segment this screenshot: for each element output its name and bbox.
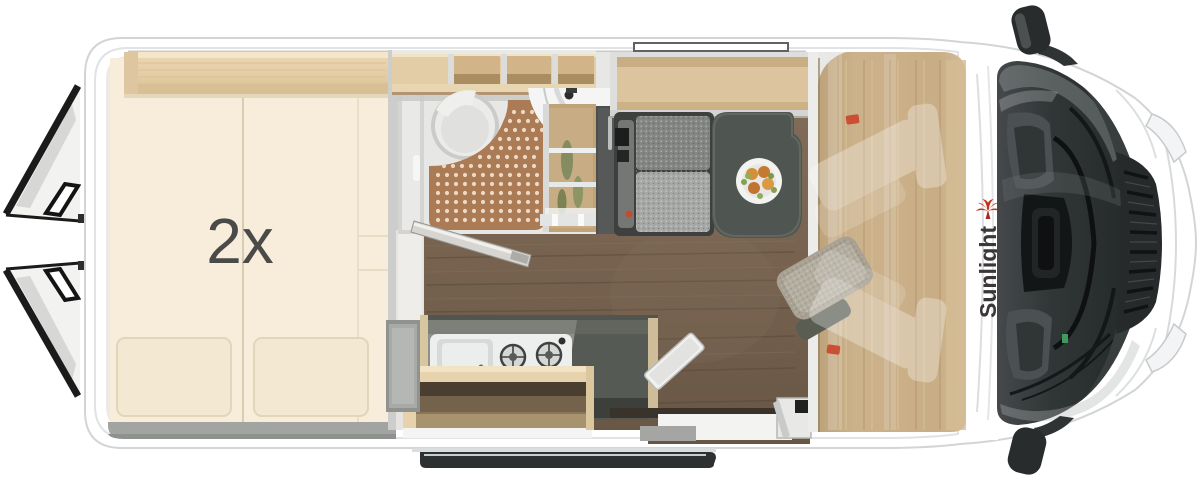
svg-text:2x: 2x <box>206 205 274 277</box>
